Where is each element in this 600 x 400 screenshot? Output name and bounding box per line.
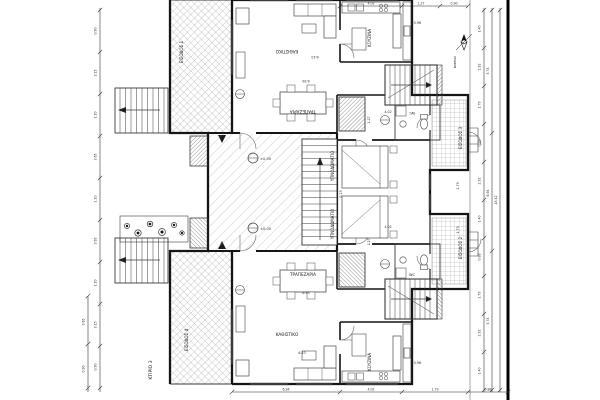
label-entrance-3: ΕΙΣΟΔΟΣ 3 — [458, 127, 463, 150]
label-north: ΒΟΡΡΑΣ — [453, 56, 457, 68]
svg-text:2.92: 2.92 — [478, 329, 482, 336]
central-court — [209, 134, 337, 250]
label-living-top: ΚΑΘΙΣΤΙΚΟ — [275, 49, 298, 54]
svg-text:0.90: 0.90 — [82, 365, 86, 372]
svg-text:3.65: 3.65 — [82, 318, 86, 325]
label-wc-top: WC — [409, 111, 415, 115]
svg-text:0.25: 0.25 — [339, 190, 343, 197]
internal-stair — [385, 65, 442, 105]
shaft-hatch — [339, 97, 365, 131]
svg-text:0.88: 0.88 — [478, 139, 482, 146]
svg-text:6.94: 6.94 — [302, 291, 309, 295]
label-bedroom-top: ΥΠΝΟΔΩΜΑΤΙΟ — [330, 151, 335, 182]
svg-text:1.40: 1.40 — [478, 367, 482, 374]
label-bedroom-bottom: ΥΠΝΟΔΩΜΑΤΙΟ — [330, 209, 335, 240]
svg-text:1.27: 1.27 — [417, 2, 424, 6]
planter-box — [190, 136, 208, 166]
label-entrance-4: ΕΙΣΟΔΟΣ 4 — [184, 329, 189, 352]
svg-text:1.40: 1.40 — [478, 215, 482, 222]
svg-text:1.27: 1.27 — [367, 116, 371, 123]
label-living-bottom: ΚΑΘΙΣΤΙΚΟ — [276, 332, 299, 337]
svg-text:6.94: 6.94 — [282, 388, 289, 392]
sofa-set — [236, 4, 336, 78]
label-entrance-1: ΕΙΣΟΔΟΣ 1 — [179, 41, 184, 64]
svg-text:1.40: 1.40 — [478, 25, 482, 32]
label-court-level-bottom: ±0.00 — [260, 227, 272, 231]
svg-text:3.15: 3.15 — [94, 321, 98, 328]
svg-text:5.74: 5.74 — [486, 317, 490, 324]
label-entrance-2: ΕΙΣΟΔΟΣ 2 — [458, 237, 463, 260]
svg-text:3.15: 3.15 — [94, 69, 98, 76]
external-stair-lower — [115, 238, 168, 283]
svg-text:0.88: 0.88 — [484, 388, 491, 392]
svg-text:1.79: 1.79 — [456, 182, 460, 189]
label-wc-bottom: WC — [409, 273, 415, 277]
svg-text:4.02: 4.02 — [367, 388, 374, 392]
label-dining-bottom: ΤΡΑΠΕΖΑΡΙΑ — [289, 272, 316, 277]
svg-text:1.27: 1.27 — [367, 238, 371, 245]
svg-text:18.42: 18.42 — [494, 195, 498, 204]
dining-set — [273, 85, 333, 121]
left-dimension-chain — [98, 8, 102, 392]
bed — [342, 146, 397, 188]
svg-text:6.94: 6.94 — [302, 79, 309, 83]
svg-text:0.88: 0.88 — [478, 253, 482, 260]
svg-text:1.79: 1.79 — [431, 388, 438, 392]
svg-text:0.90: 0.90 — [94, 363, 98, 370]
external-stair-upper — [115, 88, 168, 133]
label-level-top: +0.96 — [411, 21, 421, 25]
svg-text:1.20: 1.20 — [94, 279, 98, 286]
svg-text:3.65: 3.65 — [94, 153, 98, 160]
entrance-corridor-hatch — [170, 0, 232, 133]
floor-plan-sheet: ΕΙΣΟΔΟΣ 1 ΕΙΣΟΔΟΣ 4 ΕΙΣΟΔΟΣ 3 ΕΙΣΟΔΟΣ 2 … — [0, 0, 600, 400]
svg-text:4.02: 4.02 — [384, 110, 391, 114]
left-secondary-chain — [86, 294, 90, 392]
svg-text:3.65: 3.65 — [94, 237, 98, 244]
label-level-bottom: +0.96 — [411, 361, 421, 365]
svg-text:6.94: 6.94 — [486, 189, 490, 196]
svg-text:4.02: 4.02 — [367, 2, 374, 6]
svg-text:1.20: 1.20 — [94, 111, 98, 118]
svg-text:4.02: 4.02 — [384, 225, 391, 229]
svg-text:0.90: 0.90 — [94, 27, 98, 34]
label-dining-top: ΤΡΑΠΕΖΑΡΙΑ — [290, 109, 317, 114]
svg-text:1.79: 1.79 — [456, 226, 460, 233]
svg-text:2.92: 2.92 — [478, 63, 482, 70]
label-court-level-top: ±0.00 — [260, 157, 272, 161]
svg-text:6.43: 6.43 — [298, 351, 305, 355]
svg-text:6.43: 6.43 — [311, 55, 318, 59]
svg-text:1.79: 1.79 — [478, 291, 482, 298]
north-arrow-icon — [456, 34, 472, 50]
svg-text:5.74: 5.74 — [486, 67, 490, 74]
svg-text:1.10: 1.10 — [94, 195, 98, 202]
svg-text:2.92: 2.92 — [478, 177, 482, 184]
label-kitchen-bottom: ΚΟΥΖΙΝΑ — [367, 353, 372, 371]
label-building: ΚΤΙΡΙΟ 3 — [148, 360, 154, 379]
svg-text:1.79: 1.79 — [478, 101, 482, 108]
label-kitchen-top: ΚΟΥΖΙΝΑ — [367, 29, 372, 47]
floor-plan-drawing: ΕΙΣΟΔΟΣ 1 ΕΙΣΟΔΟΣ 4 ΕΙΣΟΔΟΣ 3 ΕΙΣΟΔΟΣ 2 … — [0, 0, 600, 400]
svg-text:0.90: 0.90 — [450, 2, 457, 6]
